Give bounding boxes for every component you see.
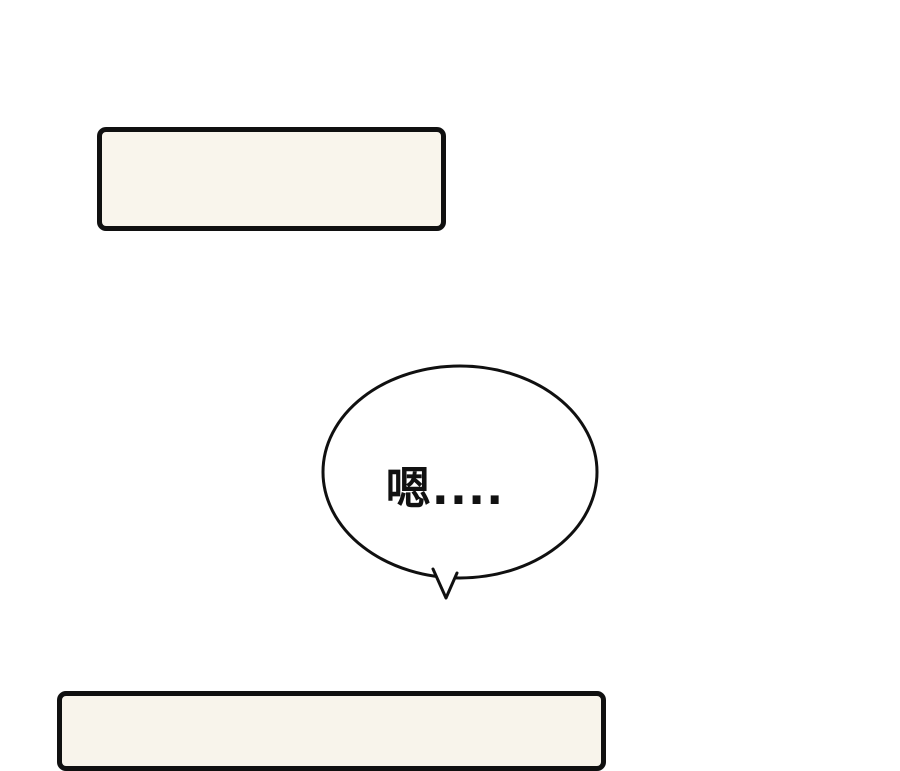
comic-page: 嗯....	[0, 0, 900, 703]
caption-box-top	[97, 127, 446, 231]
speech-bubble-tail	[433, 569, 457, 598]
speech-bubble-text: 嗯....	[300, 461, 590, 515]
caption-box-bottom	[57, 691, 606, 771]
